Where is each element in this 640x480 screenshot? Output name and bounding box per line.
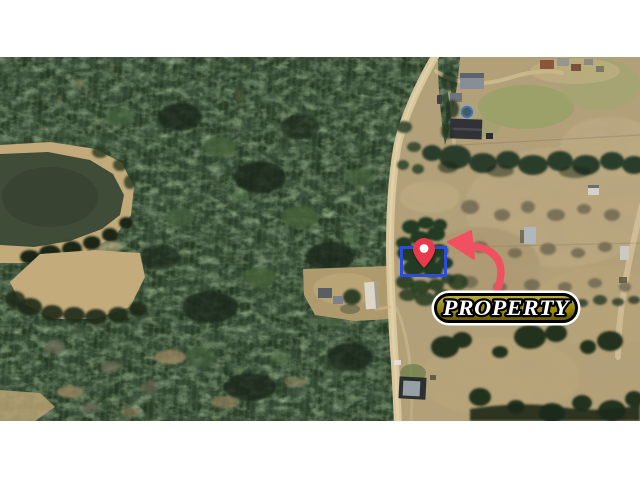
property-listing-aerial-image: PROPERTY [0,0,640,480]
property-label: PROPERTY [440,296,572,320]
aerial-photo [0,57,640,421]
house-roof [450,118,483,139]
arrowhead [448,231,474,259]
vehicle [437,95,442,104]
letterbox-top [0,0,640,57]
letterbox-bottom [0,421,640,480]
arrow-icon [440,224,520,300]
pond [0,142,136,270]
corner-structures [530,58,620,84]
property-label-text: PROPERTY [442,296,571,320]
aerial-map: PROPERTY [0,57,640,421]
property-label-badge: PROPERTY [434,293,578,323]
pin-dot [420,244,429,253]
location-pin-icon [412,237,436,269]
